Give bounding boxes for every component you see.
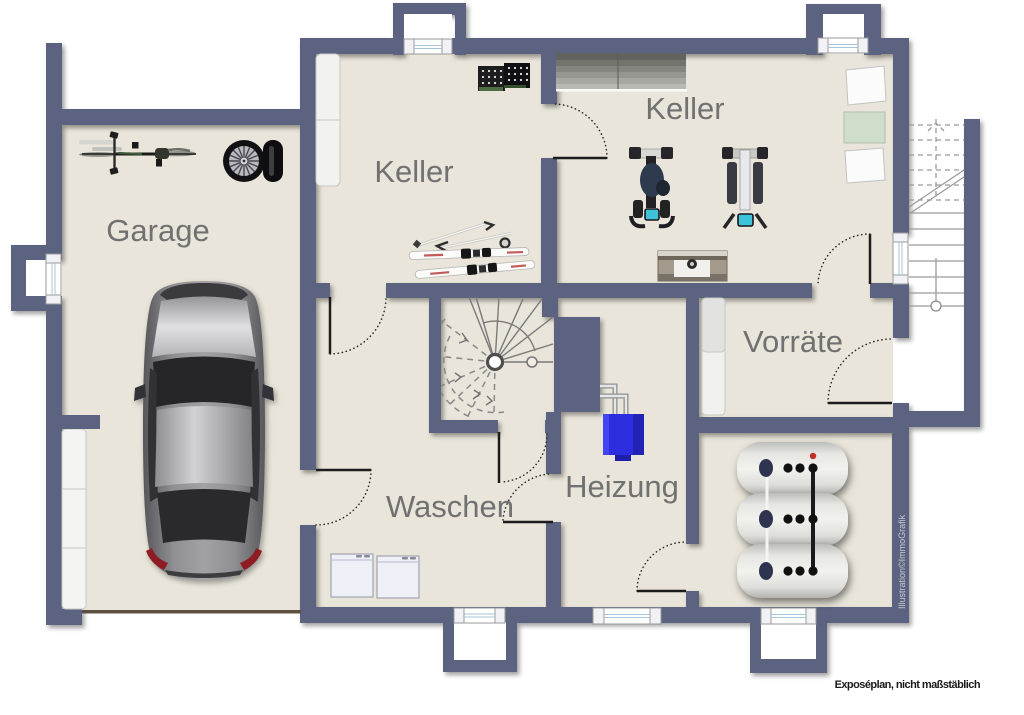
- svg-text:Keller: Keller: [645, 91, 724, 126]
- svg-text:Illustration©ImmoGrafik: Illustration©ImmoGrafik: [897, 514, 907, 609]
- svg-text:Garage: Garage: [106, 213, 209, 248]
- svg-text:Heizung: Heizung: [565, 469, 679, 504]
- svg-text:Exposéplan, nicht maßstäblich: Exposéplan, nicht maßstäblich: [835, 679, 981, 691]
- svg-text:Waschen: Waschen: [386, 489, 514, 524]
- svg-text:Keller: Keller: [374, 154, 453, 189]
- svg-text:Vorräte: Vorräte: [743, 324, 843, 359]
